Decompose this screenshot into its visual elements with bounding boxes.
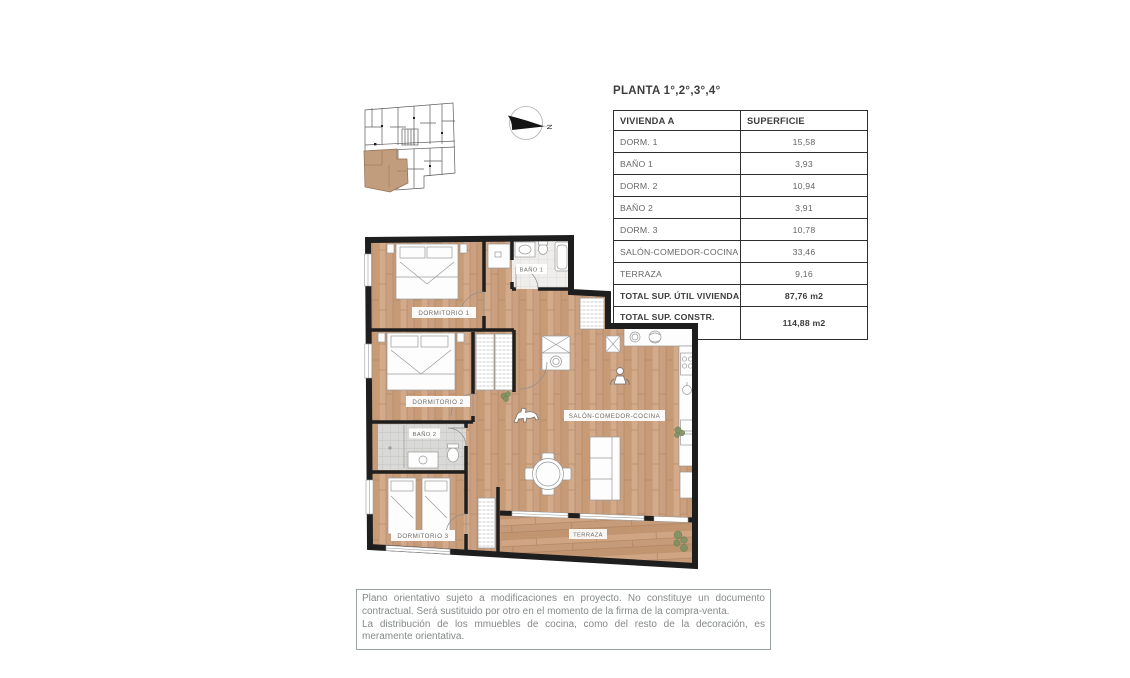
label-dorm2: DORMITORIO 2 [406,396,470,407]
row-label: DORM. 2 [614,175,741,197]
bed-double-dorm1 [396,244,458,299]
page-title: PLANTA 1°,2°,3°,4° [613,85,721,97]
nightstand [378,333,385,342]
svg-text:DORMITORIO 1: DORMITORIO 1 [418,310,469,317]
disclaimer-box: Plano orientativo sujeto a modificacione… [356,589,771,650]
laundry-column [542,336,570,370]
nightstand [387,244,394,253]
north-arrow-icon [508,116,544,131]
svg-text:SALÓN-COMEDOR-COCINA: SALÓN-COMEDOR-COCINA [569,413,661,420]
table-row: BAÑO 1 3,93 [614,153,868,175]
total-value: 87,76 m2 [741,285,868,307]
svg-text:TERRAZA: TERRAZA [573,533,603,539]
row-value: 33,46 [741,241,868,263]
table-header-superficie: SUPERFICIE [741,111,868,131]
label-terraza: TERRAZA [569,529,607,539]
svg-text:BAÑO 1: BAÑO 1 [520,267,544,274]
sofa [590,437,620,500]
disclaimer-line-1: Plano orientativo sujeto a modificacione… [362,593,765,619]
row-label: DORM. 1 [614,131,741,153]
svg-text:BAÑO 2: BAÑO 2 [413,431,437,438]
svg-text:DORMITORIO 3: DORMITORIO 3 [397,533,448,540]
north-compass: N [503,100,553,148]
nightstand [457,333,464,342]
building-key-plan [362,99,456,198]
table-header-row: VIVIENDA A SUPERFICIE [614,111,868,131]
wardrobe-dorm2 [476,334,494,390]
sideboard [680,472,694,498]
bed-double-dorm2 [387,333,455,390]
label-bano1: BAÑO 1 [516,264,547,274]
label-dorm1: DORMITORIO 1 [412,307,476,318]
row-value: 3,93 [741,153,868,175]
row-label: BAÑO 2 [614,197,741,219]
wardrobe-hall [580,298,604,329]
label-bano2: BAÑO 2 [409,429,440,439]
row-value: 10,78 [741,219,868,241]
table-row: DORM. 1 15,58 [614,131,868,153]
svg-text:DORMITORIO 2: DORMITORIO 2 [412,399,463,406]
floor-plan: DORMITORIO 1 BAÑO 1 DORMITORIO 2 BAÑO 2 … [358,232,703,582]
row-value: 9,16 [741,263,868,285]
row-value: 15,58 [741,131,868,153]
table-header-vivienda: VIVIENDA A [614,111,741,131]
window-left-dorm3 [366,480,373,514]
disclaimer-line-2: La distribución de los mmuebles de cocin… [362,619,765,645]
window-left-dorm1 [365,254,372,286]
wardrobe-dorm3 [478,498,495,548]
table-row: DORM. 2 10,94 [614,175,868,197]
label-salon: SALÓN-COMEDOR-COCINA [564,410,665,421]
total-value: 114,88 m2 [741,307,868,340]
door-terraza [654,516,688,522]
nightstand [460,244,467,253]
hall-shelf-box [495,252,501,257]
row-label: BAÑO 1 [614,153,741,175]
row-value: 10,94 [741,175,868,197]
row-value: 3,91 [741,197,868,219]
table-row: BAÑO 2 3,91 [614,197,868,219]
window-left-dorm2 [365,344,372,378]
compass-north-label: N [545,124,553,129]
brochure-page: N PLANTA 1°,2°,3°,4° VIVIENDA A SUPERFIC… [0,0,1130,678]
label-dorm3: DORMITORIO 3 [391,530,455,541]
window-marker-salon [606,336,620,352]
wardrobe-dorm2 [495,334,513,390]
highlighted-unit [364,149,408,192]
